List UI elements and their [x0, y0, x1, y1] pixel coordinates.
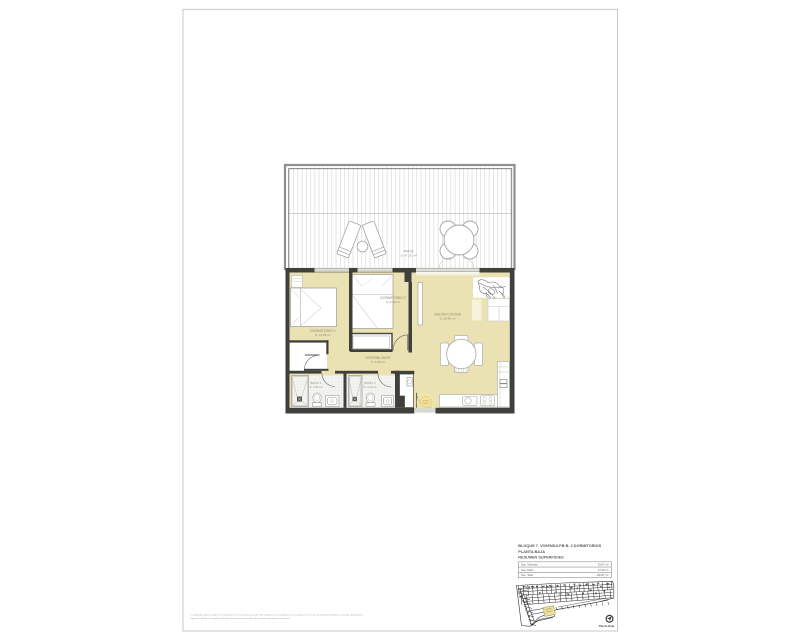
svg-text:Las infografías, planos e imág: Las infografías, planos e imágenes de es…: [191, 613, 365, 616]
svg-text:RESUMEN SUPERFICIES: RESUMEN SUPERFICIES: [518, 555, 564, 559]
svg-text:alguna de calidades. Las super: alguna de calidades. Las superficies ind…: [191, 617, 291, 620]
svg-text:PLANTA BAJA: PLANTA BAJA: [518, 550, 545, 554]
svg-text:BLOQUE 7. VIVIENDA PB B. 2 DOR: BLOQUE 7. VIVIENDA PB B. 2 DORMITORIOS: [518, 544, 601, 548]
svg-text:S: 9.90 m²: S: 9.90 m²: [386, 300, 400, 304]
svg-text:Sup. Total: Sup. Total: [521, 573, 533, 577]
svg-text:Sup. Vivienda: Sup. Vivienda: [521, 563, 538, 567]
svg-text:47.20 m²: 47.20 m²: [598, 568, 609, 572]
svg-text:S: 3.80 m²: S: 3.80 m²: [371, 360, 385, 364]
svg-text:100.87 m²: 100.87 m²: [596, 573, 608, 577]
svg-text:Planta Baja: Planta Baja: [599, 624, 615, 628]
svg-text:S: 47.20 m²: S: 47.20 m²: [401, 253, 417, 257]
svg-text:Sup. Patio: Sup. Patio: [521, 568, 534, 572]
svg-text:53.67 m²: 53.67 m²: [598, 563, 609, 567]
svg-text:S: 4.25 m²: S: 4.25 m²: [310, 385, 323, 389]
svg-text:S: 11.95 m²: S: 11.95 m²: [315, 333, 331, 337]
svg-text:S: 28.45 m²: S: 28.45 m²: [440, 316, 456, 320]
svg-text:S: 4.20 m²: S: 4.20 m²: [364, 385, 377, 389]
